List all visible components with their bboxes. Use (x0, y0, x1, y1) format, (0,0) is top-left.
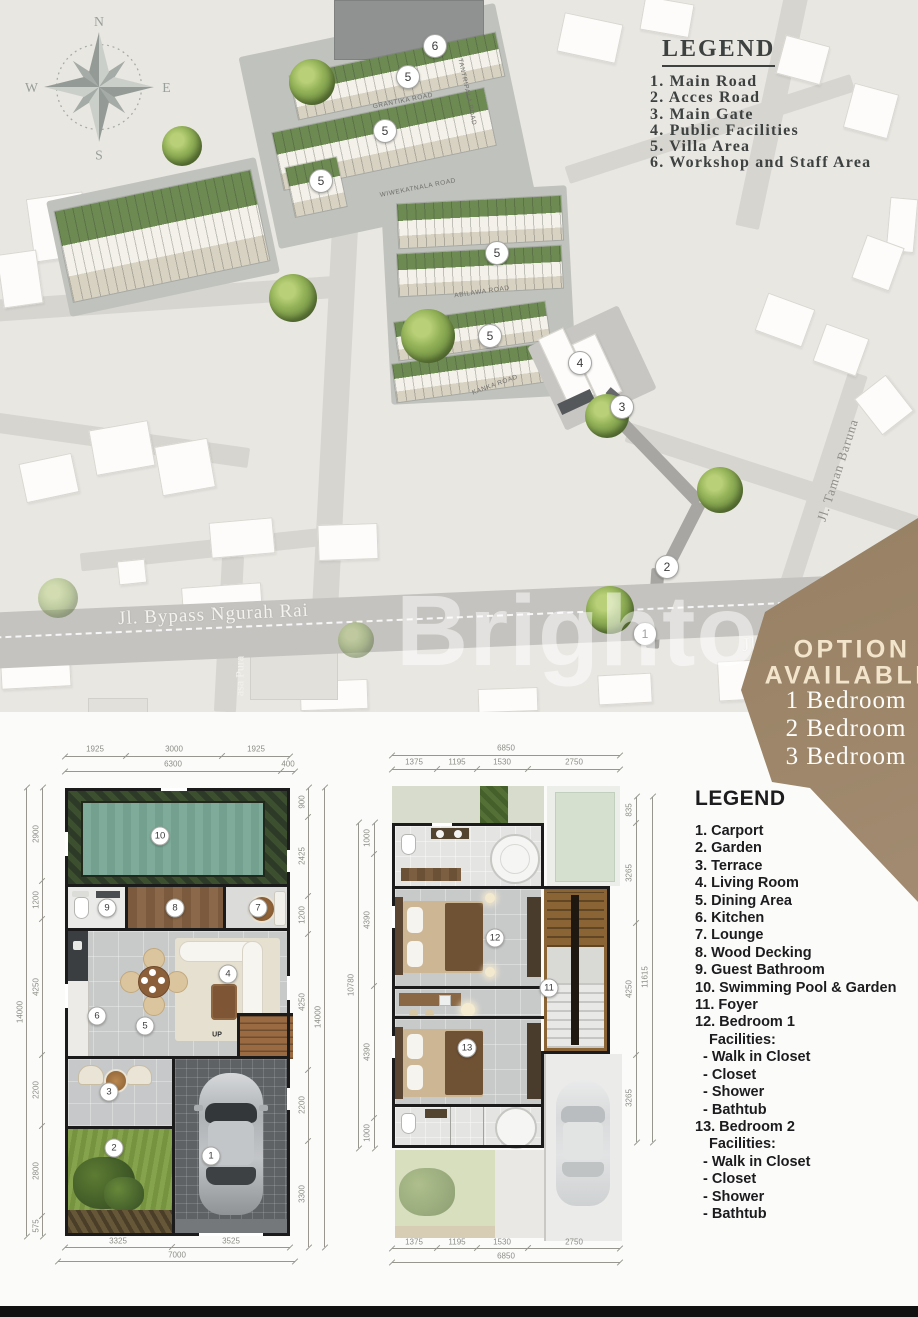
lamp-icon (461, 1003, 475, 1017)
pillow-icon (407, 1034, 423, 1059)
building (478, 687, 539, 712)
dim-label: 2200 (298, 1096, 307, 1114)
wall (392, 823, 544, 826)
room-marker-label: 10 (155, 831, 166, 842)
building (317, 523, 378, 561)
cooktop-icon (73, 941, 82, 950)
room-marker-terrace: 3 (100, 1083, 119, 1102)
bedroom-2 (395, 1019, 541, 1104)
dresser-strip (395, 989, 541, 1019)
room-marker-label: 5 (142, 1021, 147, 1032)
room-marker-garden: 2 (105, 1139, 124, 1158)
dim-label: 2750 (565, 1238, 583, 1247)
compass-rose: N E S W (24, 12, 174, 162)
building (18, 453, 79, 503)
tree-icon (269, 274, 317, 322)
compass-n: N (94, 14, 104, 29)
car-icon (199, 1073, 263, 1215)
bed-icon (403, 901, 483, 973)
dimension-line (26, 788, 27, 1236)
facility-item: - Closet (695, 1171, 910, 1188)
dim-label: 2200 (32, 1081, 41, 1099)
room-marker-guest-bathroom: 9 (98, 899, 117, 918)
plate-icon (141, 977, 148, 984)
sink-icon (436, 830, 444, 838)
plate-icon (149, 969, 156, 976)
map-marker-label: 5 (318, 174, 325, 188)
dim-label: 1375 (405, 1238, 423, 1247)
terrace (68, 1059, 172, 1126)
dimension-line (65, 756, 290, 757)
dim-label: 2750 (565, 758, 583, 767)
ghost-car-rear (562, 1162, 604, 1177)
dim-label: 1000 (363, 829, 372, 847)
ghost-garden (395, 1150, 495, 1238)
site-legend-title: LEGEND (662, 36, 775, 67)
kitchen-cabinet (68, 981, 89, 1056)
sink-icon (454, 830, 462, 838)
map-marker-villa: 5 (485, 241, 509, 265)
dim-label: 1375 (405, 758, 423, 767)
dimension-line (58, 1261, 295, 1262)
dim-label: 1200 (32, 891, 41, 909)
dim-label: 11615 (641, 966, 650, 988)
site-legend-item: 1. Main Road (650, 74, 900, 90)
ghost-car-windshield (561, 1106, 605, 1123)
dim-label: 835 (625, 803, 634, 816)
map-marker-workshop: 6 (423, 34, 447, 58)
lamp-icon (485, 967, 495, 977)
tree-icon (338, 622, 374, 658)
ghost-car-icon (556, 1080, 610, 1206)
building (813, 323, 870, 376)
swimming-pool (81, 801, 265, 877)
blanket (445, 903, 483, 971)
dimension-line (65, 771, 295, 772)
facility-item: - Walk in Closet (695, 1154, 910, 1171)
map-marker-label: 3 (619, 400, 626, 414)
toilet-icon (401, 1113, 416, 1134)
room-marker-label: 9 (104, 903, 109, 914)
room-marker-wood-decking: 8 (166, 899, 185, 918)
map-marker-label: 4 (577, 356, 584, 370)
compass-w: W (25, 80, 38, 95)
dimension-line (392, 755, 620, 756)
ghost-pool (555, 792, 615, 882)
carport (175, 1059, 287, 1233)
dim-label: 2800 (32, 1162, 41, 1180)
building (250, 652, 338, 700)
planting-strip (68, 1210, 172, 1233)
window-gap (287, 850, 290, 872)
shower-partition (483, 1107, 484, 1145)
wall (392, 1016, 544, 1019)
plate-icon (158, 977, 165, 984)
plate-icon (149, 986, 156, 993)
dim-label: 14000 (16, 1001, 25, 1023)
bush-icon (104, 1177, 144, 1211)
dim-label: 4250 (625, 980, 634, 998)
window-gap (287, 1088, 290, 1110)
footer-bar (0, 1306, 918, 1317)
dimension-line (392, 1262, 620, 1263)
terrace-chair-icon (126, 1065, 152, 1085)
dim-label: 3265 (625, 864, 634, 882)
window-gap (392, 906, 395, 928)
pillow-icon (407, 1065, 423, 1090)
dimension-line (636, 797, 637, 1142)
dimension-line (65, 1247, 290, 1248)
option-item: 3 Bedroom (786, 743, 907, 771)
floor-legend-item: 11. Foyer (695, 997, 910, 1014)
window-gap (432, 823, 452, 826)
map-marker-label: 5 (382, 124, 389, 138)
facilities-label: Facilities: (695, 1136, 910, 1153)
building (88, 420, 155, 476)
staircase (237, 1013, 293, 1059)
car-mirror (194, 1105, 203, 1111)
lamp-icon (485, 893, 495, 903)
bathtub-icon (495, 1107, 537, 1149)
dim-label: 3300 (298, 1185, 307, 1203)
facility-item: - Bathtub (695, 1206, 910, 1223)
floor-legend-item: 5. Dining Area (695, 893, 910, 910)
toilet-icon (74, 897, 89, 919)
wall (607, 886, 610, 1054)
facility-item: - Closet (695, 1067, 910, 1084)
room-marker-bedroom2: 13 (458, 1039, 477, 1058)
ghost-bush-icon (399, 1168, 455, 1216)
door-gap (199, 1233, 263, 1236)
dim-label: 4390 (363, 911, 372, 929)
dim-label: 6850 (497, 744, 515, 753)
site-legend-item: 6. Workshop and Staff Area (650, 155, 900, 171)
window-gap (65, 832, 68, 856)
wall (65, 928, 290, 931)
dim-label: 10780 (347, 974, 356, 996)
dim-label: 575 (32, 1219, 41, 1232)
bedroom-1 (395, 889, 541, 986)
map-marker-facilities: 4 (568, 351, 592, 375)
room-marker-foyer: 11 (540, 979, 559, 998)
living-dining-area (68, 931, 287, 1056)
dim-label: 1530 (493, 1238, 511, 1247)
site-legend: LEGEND 1. Main Road 2. Acces Road 3. Mai… (650, 36, 900, 172)
room-marker-label: 2 (111, 1143, 116, 1154)
wall (65, 1056, 290, 1059)
site-legend-list: 1. Main Road 2. Acces Road 3. Main Gate … (650, 74, 900, 172)
building (117, 559, 147, 586)
window-gap (161, 788, 187, 791)
building (154, 438, 216, 497)
room-marker-lounge: 7 (249, 899, 268, 918)
dim-label: 400 (281, 760, 294, 769)
wall (392, 1145, 544, 1148)
wall (541, 1051, 610, 1054)
site-legend-item: 3. Main Gate (650, 107, 900, 123)
room-marker-label: 11 (544, 983, 554, 994)
map-marker-gate: 3 (610, 395, 634, 419)
building (556, 12, 623, 64)
dim-label: 1195 (448, 1238, 465, 1247)
dim-label: 4250 (298, 993, 307, 1011)
dim-label: 4390 (363, 1043, 372, 1061)
headboard (395, 1027, 403, 1099)
bathtub-inner (500, 844, 530, 874)
site-legend-item: 5. Villa Area (650, 139, 900, 155)
room-marker-kitchen: 6 (88, 1007, 107, 1026)
dim-label: 14000 (314, 1006, 323, 1028)
tree-icon (697, 467, 743, 513)
roof-garden-strip (392, 786, 544, 823)
wall (172, 1056, 175, 1236)
building (0, 249, 44, 308)
floor-legend-item: 8. Wood Decking (695, 945, 910, 962)
vanity-counter (425, 1109, 447, 1118)
wall (392, 886, 544, 889)
room-marker-bedroom1: 12 (486, 929, 505, 948)
room-marker-label: 8 (172, 903, 177, 914)
room-marker-label: 3 (106, 1087, 111, 1098)
upper-floor-plan: 12 11 13 (392, 786, 620, 1241)
carport-entry (175, 1219, 287, 1233)
map-marker-label: 5 (487, 329, 494, 343)
tree-icon (401, 309, 455, 363)
dimension-line (358, 823, 359, 1148)
window-gap (65, 984, 68, 1008)
dim-label: 900 (298, 795, 307, 808)
room-marker-label: 12 (490, 933, 501, 944)
facility-item: - Shower (695, 1189, 910, 1206)
car-rear-window (206, 1167, 256, 1185)
room-marker-label: 13 (462, 1043, 473, 1054)
ground-floor-plan: UP 10 9 8 7 6 5 4 3 2 1 (65, 788, 290, 1236)
dim-label: 3000 (165, 745, 183, 754)
room-marker-label: 7 (255, 903, 260, 914)
facility-item: - Shower (695, 1084, 910, 1101)
counter-icon (399, 993, 461, 1006)
building (209, 517, 276, 558)
dimension-line (324, 788, 325, 1247)
wall (392, 986, 544, 989)
floor-legend-item-bedroom1: 12. Bedroom 1 (695, 1014, 910, 1031)
car-mirror (259, 1105, 268, 1111)
room-marker-label: 6 (94, 1011, 99, 1022)
dimension-line (392, 769, 620, 770)
tree-icon (38, 578, 78, 618)
stairs-up-label: UP (212, 1032, 222, 1039)
tree-icon (289, 59, 335, 105)
ghost-paving (495, 1150, 544, 1238)
option-item: 2 Bedroom (786, 715, 907, 743)
wall (541, 823, 544, 889)
site-legend-item: 2. Acces Road (650, 90, 900, 106)
option-item: 1 Bedroom (786, 687, 907, 715)
wall (223, 884, 226, 931)
building (755, 293, 816, 348)
vanity-counter (431, 828, 469, 839)
wardrobe-icon (527, 1023, 541, 1099)
map-marker-label: 2 (664, 560, 671, 574)
dim-label: 1200 (298, 906, 307, 924)
dim-label: 3325 (109, 1237, 127, 1246)
dim-label: 3525 (222, 1237, 240, 1246)
shower-partition (450, 1107, 451, 1145)
bench-icon (274, 891, 286, 926)
bathroom-2 (395, 1107, 541, 1145)
ghost-pool-area (547, 786, 620, 886)
floor-legend-item: 7. Lounge (695, 927, 910, 944)
map-marker-villa: 5 (373, 119, 397, 143)
room-marker-living: 4 (219, 965, 238, 984)
map-marker-label: 6 (432, 39, 439, 53)
map-marker-label: 5 (494, 246, 501, 260)
wall (541, 886, 610, 889)
brochure-page: Jl. Bypass Ngurah Rai Jl. B asa Pura Jl.… (0, 0, 918, 1317)
ghost-carport (544, 1054, 622, 1241)
headboard (395, 897, 403, 975)
dim-label: 4250 (32, 978, 41, 996)
stair-rail (571, 895, 579, 1045)
window-gap (392, 1036, 395, 1058)
dim-label: 6300 (164, 760, 182, 769)
dim-label: 1000 (363, 1124, 372, 1142)
map-marker-villa: 5 (309, 169, 333, 193)
floor-legend-item: 6. Kitchen (695, 910, 910, 927)
pillow-icon (407, 941, 423, 967)
site-legend-item: 4. Public Facilities (650, 123, 900, 139)
wall (392, 1104, 544, 1107)
bathroom-1 (395, 826, 541, 886)
option-title-line1: OPTION (794, 636, 911, 665)
facility-item: - Bathtub (695, 1102, 910, 1119)
building (88, 698, 148, 712)
room-marker-label: 4 (225, 969, 230, 980)
dim-label: 2425 (298, 847, 307, 865)
villa-row (397, 196, 563, 249)
dimension-line (42, 788, 43, 1236)
wall (541, 1051, 544, 1148)
wardrobe-icon (527, 897, 541, 977)
dim-label: 1925 (86, 745, 104, 754)
dim-label: 1925 (247, 745, 265, 754)
dim-label: 6850 (497, 1252, 515, 1261)
map-marker-villa: 5 (478, 324, 502, 348)
dim-label: 1195 (448, 758, 465, 767)
closet-icon (401, 868, 461, 881)
ghost-car-roof (563, 1122, 603, 1160)
coffee-table-icon (211, 984, 237, 1020)
dim-label: 2900 (32, 825, 41, 843)
compass-e: E (162, 80, 170, 95)
dim-label: 7000 (168, 1251, 186, 1260)
bathtub-icon (490, 834, 540, 884)
pillow-icon (407, 907, 423, 933)
floor-legend-item: 3. Terrace (695, 858, 910, 875)
dimension-line (652, 797, 653, 1142)
terrace-chair-icon (78, 1065, 104, 1085)
dimension-line (392, 1248, 620, 1249)
building (639, 0, 694, 38)
floor-legend-item-bedroom2: 13. Bedroom 2 (695, 1119, 910, 1136)
floor-legend-item: 4. Living Room (695, 875, 910, 892)
room-marker-carport: 1 (202, 1147, 221, 1166)
wall (125, 884, 128, 931)
room-marker-dining: 5 (136, 1017, 155, 1036)
vanity-counter (96, 891, 120, 898)
window-gap (287, 976, 290, 1000)
facilities-label: Facilities: (695, 1032, 910, 1049)
dimension-line (308, 788, 309, 1247)
toilet-icon (401, 834, 416, 855)
floor-legend-item: 10. Swimming Pool & Garden (695, 980, 910, 997)
staircase-block (544, 889, 607, 1051)
ghost-planting-strip (395, 1226, 495, 1238)
room-marker-label: 1 (208, 1151, 213, 1162)
sink-icon (439, 995, 451, 1006)
road-label-angkasa-pura: asa Pura (233, 656, 248, 696)
dim-label: 3265 (625, 1089, 634, 1107)
compass-s: S (95, 148, 103, 163)
dim-label: 1530 (493, 758, 511, 767)
map-marker-label: 5 (405, 70, 412, 84)
kitchen-counter-dark (68, 931, 88, 981)
map-marker-villa: 5 (396, 65, 420, 89)
planter-icon (480, 786, 508, 823)
wall (65, 884, 290, 887)
room-marker-pool: 10 (151, 827, 170, 846)
car-windshield (205, 1103, 257, 1123)
floor-legend-item: 9. Guest Bathroom (695, 962, 910, 979)
facility-item: - Walk in Closet (695, 1049, 910, 1066)
wall (65, 1126, 175, 1129)
